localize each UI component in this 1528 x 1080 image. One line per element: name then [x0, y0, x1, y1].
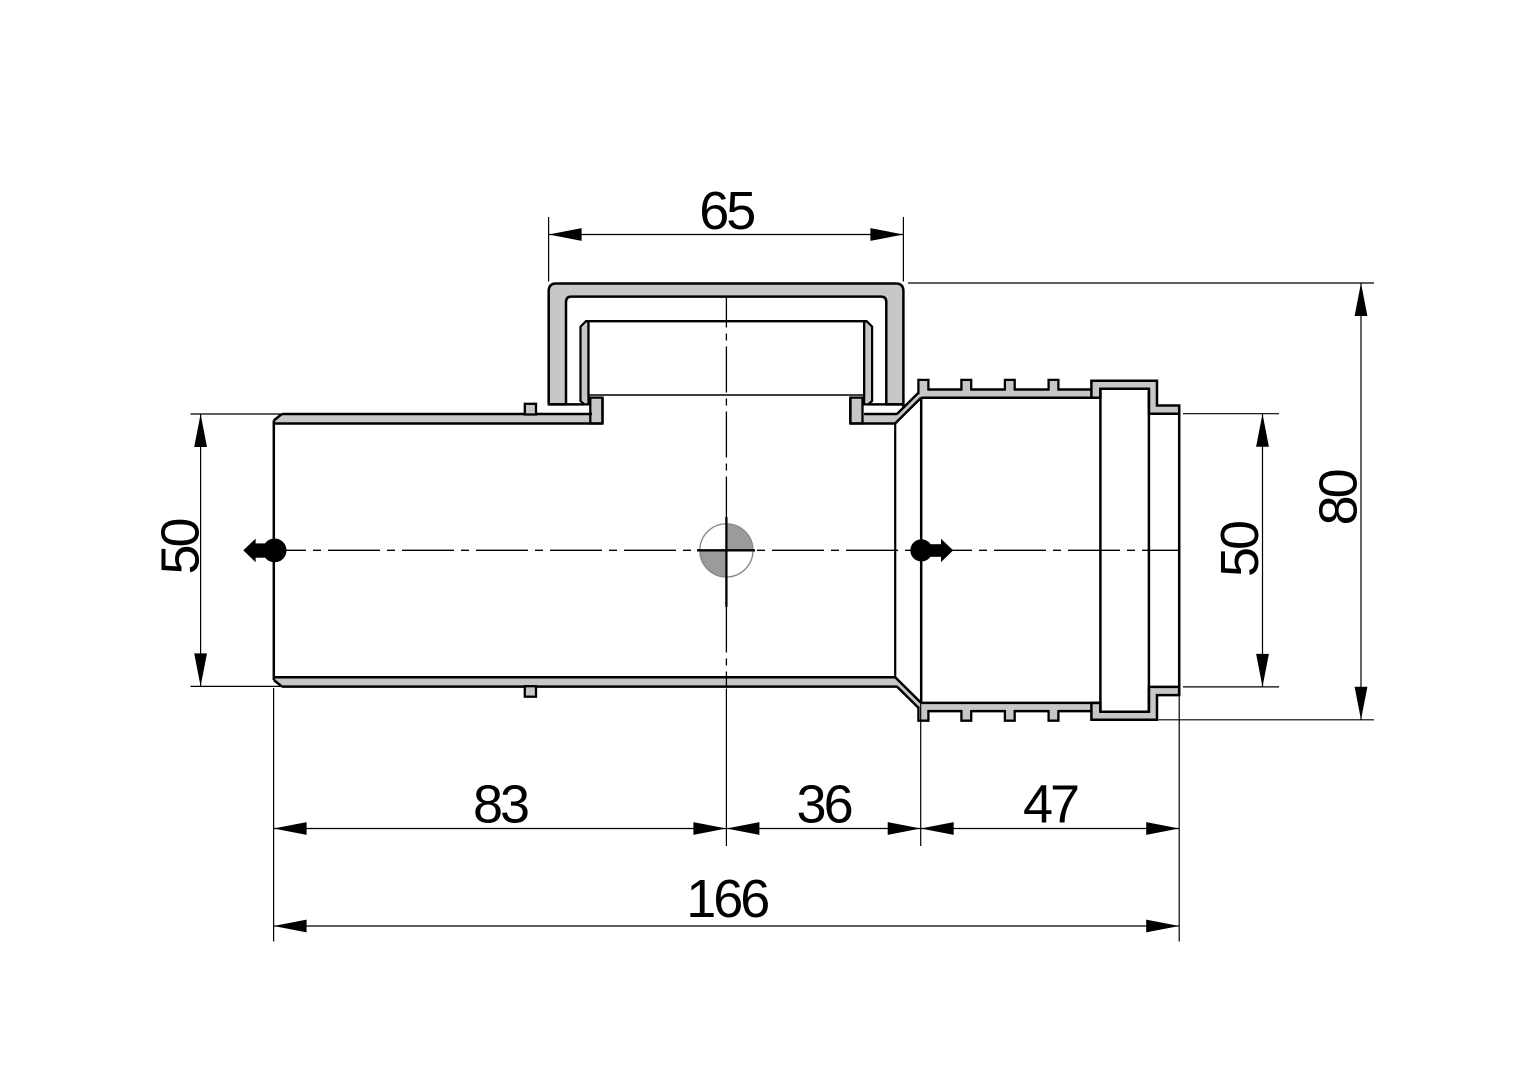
svg-text:83: 83 — [473, 775, 528, 835]
svg-text:50: 50 — [151, 520, 211, 575]
svg-text:65: 65 — [699, 181, 754, 241]
svg-text:166: 166 — [686, 869, 768, 929]
svg-text:47: 47 — [1023, 775, 1078, 835]
svg-text:36: 36 — [797, 775, 852, 835]
svg-text:50: 50 — [1210, 522, 1270, 577]
svg-text:80: 80 — [1308, 470, 1368, 525]
